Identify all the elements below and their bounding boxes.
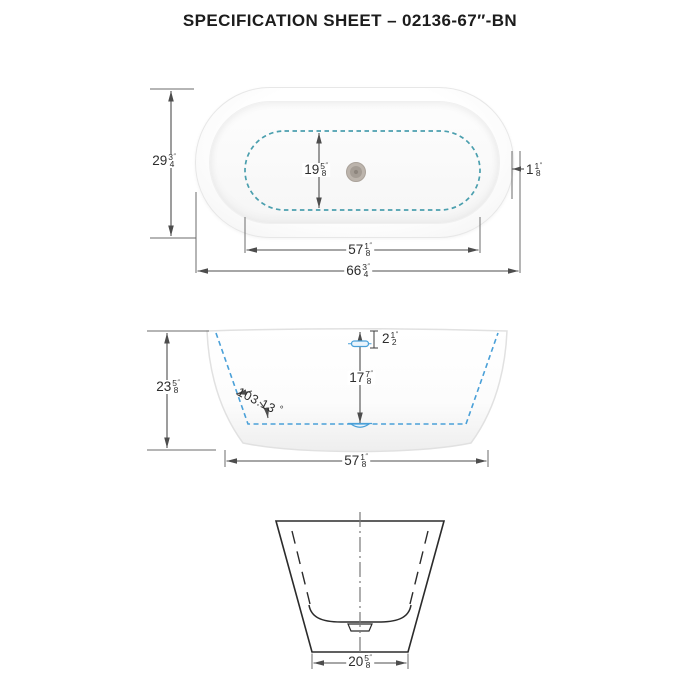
dim-label-overall-length: 66 3″ 4 xyxy=(344,264,372,278)
spec-sheet-page: SPECIFICATION SHEET – 02136-67″-BN xyxy=(0,0,700,700)
dim-fraction: 1″ 8 xyxy=(364,243,372,257)
frac-den: 8 xyxy=(536,170,541,177)
dim-whole: 23 xyxy=(156,380,171,394)
dim-whole: 2 xyxy=(382,332,390,346)
front-view-drawing xyxy=(147,329,507,467)
frac-den: 8 xyxy=(174,387,179,394)
dim-fraction: 5″ 8 xyxy=(172,380,180,394)
drain-icon xyxy=(347,163,366,182)
dim-label-basin-width: 19 5″ 8 xyxy=(302,163,330,177)
dim-whole: 1 xyxy=(526,163,534,177)
dim-fraction: 5″ 8 xyxy=(320,163,328,177)
dim-label-overflow-drop: 2 1″ 2 xyxy=(380,332,400,346)
dim-fraction: 3″ 4 xyxy=(362,264,370,278)
dim-whole: 19 xyxy=(304,163,319,177)
dim-whole: 20 xyxy=(348,655,363,669)
dim-label-basin-length: 57 1″ 8 xyxy=(346,243,374,257)
dim-whole: 17 xyxy=(349,371,364,385)
dim-fraction: 1″ 2 xyxy=(391,332,399,346)
dim-whole: 57 xyxy=(344,454,359,468)
dim-label-overall-width: 29 3″ 4 xyxy=(150,154,178,168)
frac-den: 8 xyxy=(366,250,371,257)
side-view-drawing xyxy=(276,512,444,669)
sheet-title: SPECIFICATION SHEET – 02136-67″-BN xyxy=(0,11,700,31)
dim-fraction: 3″ 4 xyxy=(168,154,176,168)
dim-fraction: 1″ 8 xyxy=(360,454,368,468)
frac-den: 8 xyxy=(322,170,327,177)
dim-arrow xyxy=(513,166,522,171)
frac-den: 8 xyxy=(366,662,371,669)
dim-label-base-length: 57 1″ 8 xyxy=(342,454,370,468)
overflow-icon xyxy=(348,341,372,347)
top-view-drawing xyxy=(150,89,524,273)
frac-den: 8 xyxy=(367,378,372,385)
dim-whole: 57 xyxy=(348,243,363,257)
dim-fraction: 7″ 8 xyxy=(365,371,373,385)
frac-den: 4 xyxy=(170,161,175,168)
dim-whole: 66 xyxy=(346,264,361,278)
dim-label-water-depth: 17 7″ 8 xyxy=(347,371,375,385)
frac-den: 2 xyxy=(392,339,397,346)
drawing-layer xyxy=(0,0,700,700)
dim-whole: 29 xyxy=(152,154,167,168)
dim-label-rim-width: 1 1″ 8 xyxy=(524,163,544,177)
frac-den: 8 xyxy=(362,461,367,468)
dim-fraction: 1″ 8 xyxy=(535,163,543,177)
frac-den: 4 xyxy=(364,271,369,278)
dim-label-overall-height: 23 5″ 8 xyxy=(154,380,182,394)
dim-fraction: 5″ 8 xyxy=(364,655,372,669)
dim-label-base-width: 20 5″ 8 xyxy=(346,655,374,669)
